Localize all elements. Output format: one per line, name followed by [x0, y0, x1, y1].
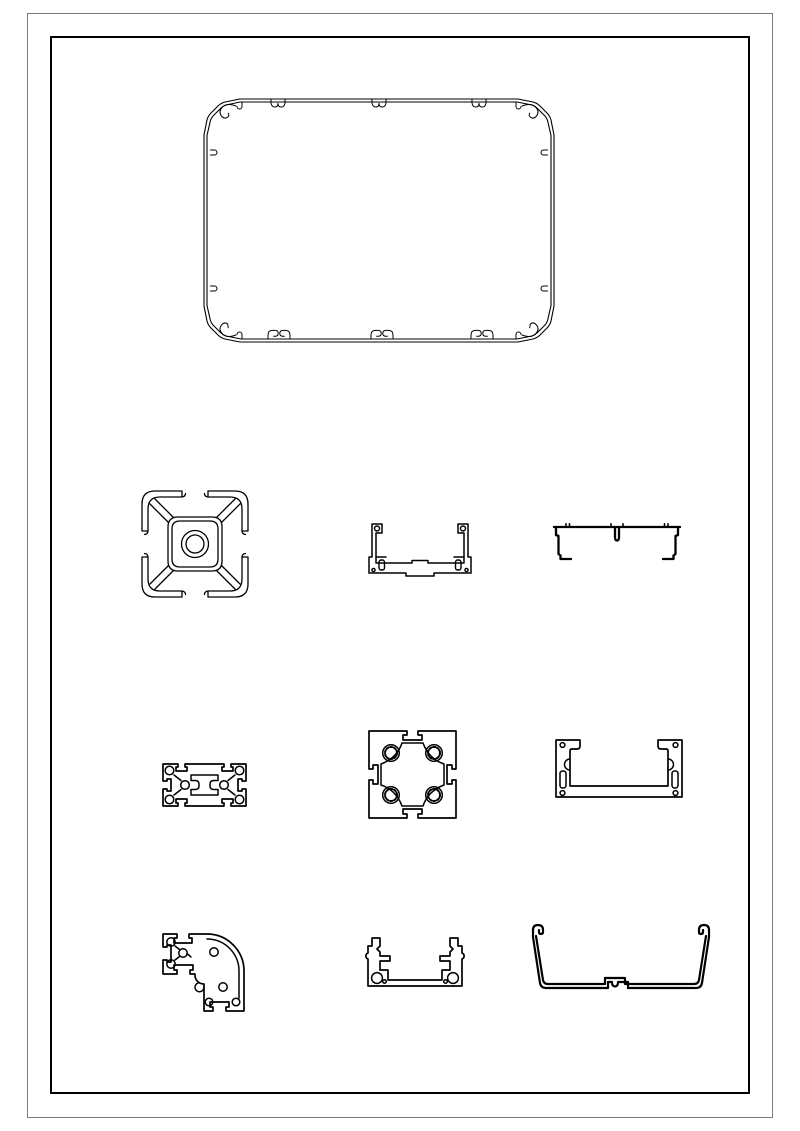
c-channel-profile	[554, 738, 684, 799]
bottom-boss-slots	[268, 330, 493, 339]
tray-drawing	[524, 922, 718, 1000]
enclosure-wall-outline	[204, 99, 554, 342]
tray-profile	[524, 922, 718, 1000]
square-single-bore-drawing	[140, 489, 250, 599]
cover-channel-drawing	[551, 521, 683, 566]
enclosure-shell-drawing	[202, 97, 556, 344]
c-channel-drawing	[554, 738, 684, 799]
drawing-sheet	[0, 0, 800, 1131]
corner-shell-segments	[142, 491, 248, 597]
tray-outline	[533, 925, 709, 988]
rect-two-slot-drawing	[161, 762, 248, 808]
u-channel-a-profile	[366, 521, 474, 579]
square-four-bore-profile	[367, 729, 458, 819]
u-channel-b-profile	[364, 936, 466, 988]
cover-channel-profile	[551, 521, 683, 566]
corner-boss-details	[211, 103, 548, 339]
cover-top-ticks	[566, 524, 668, 526]
square-four-bore-drawing	[367, 729, 458, 819]
rect-outline	[163, 764, 246, 806]
u-channel-a-drawing	[366, 521, 474, 579]
channel-outline	[366, 938, 464, 986]
square-outline	[369, 731, 456, 818]
square-single-bore-profile	[140, 489, 250, 599]
centre-bore-inner	[186, 535, 204, 553]
radius-corner-drawing	[161, 932, 246, 1013]
channel-details	[372, 526, 468, 572]
c-channel-outline	[556, 740, 682, 797]
core-wall	[168, 517, 222, 571]
cover-outline	[554, 527, 680, 559]
channel-bores	[372, 973, 459, 984]
radius-corner-profile	[161, 932, 246, 1013]
rect-two-slot-profile	[161, 762, 248, 808]
u-channel-b-drawing	[364, 936, 466, 988]
enclosure-shell-profile	[202, 97, 556, 344]
